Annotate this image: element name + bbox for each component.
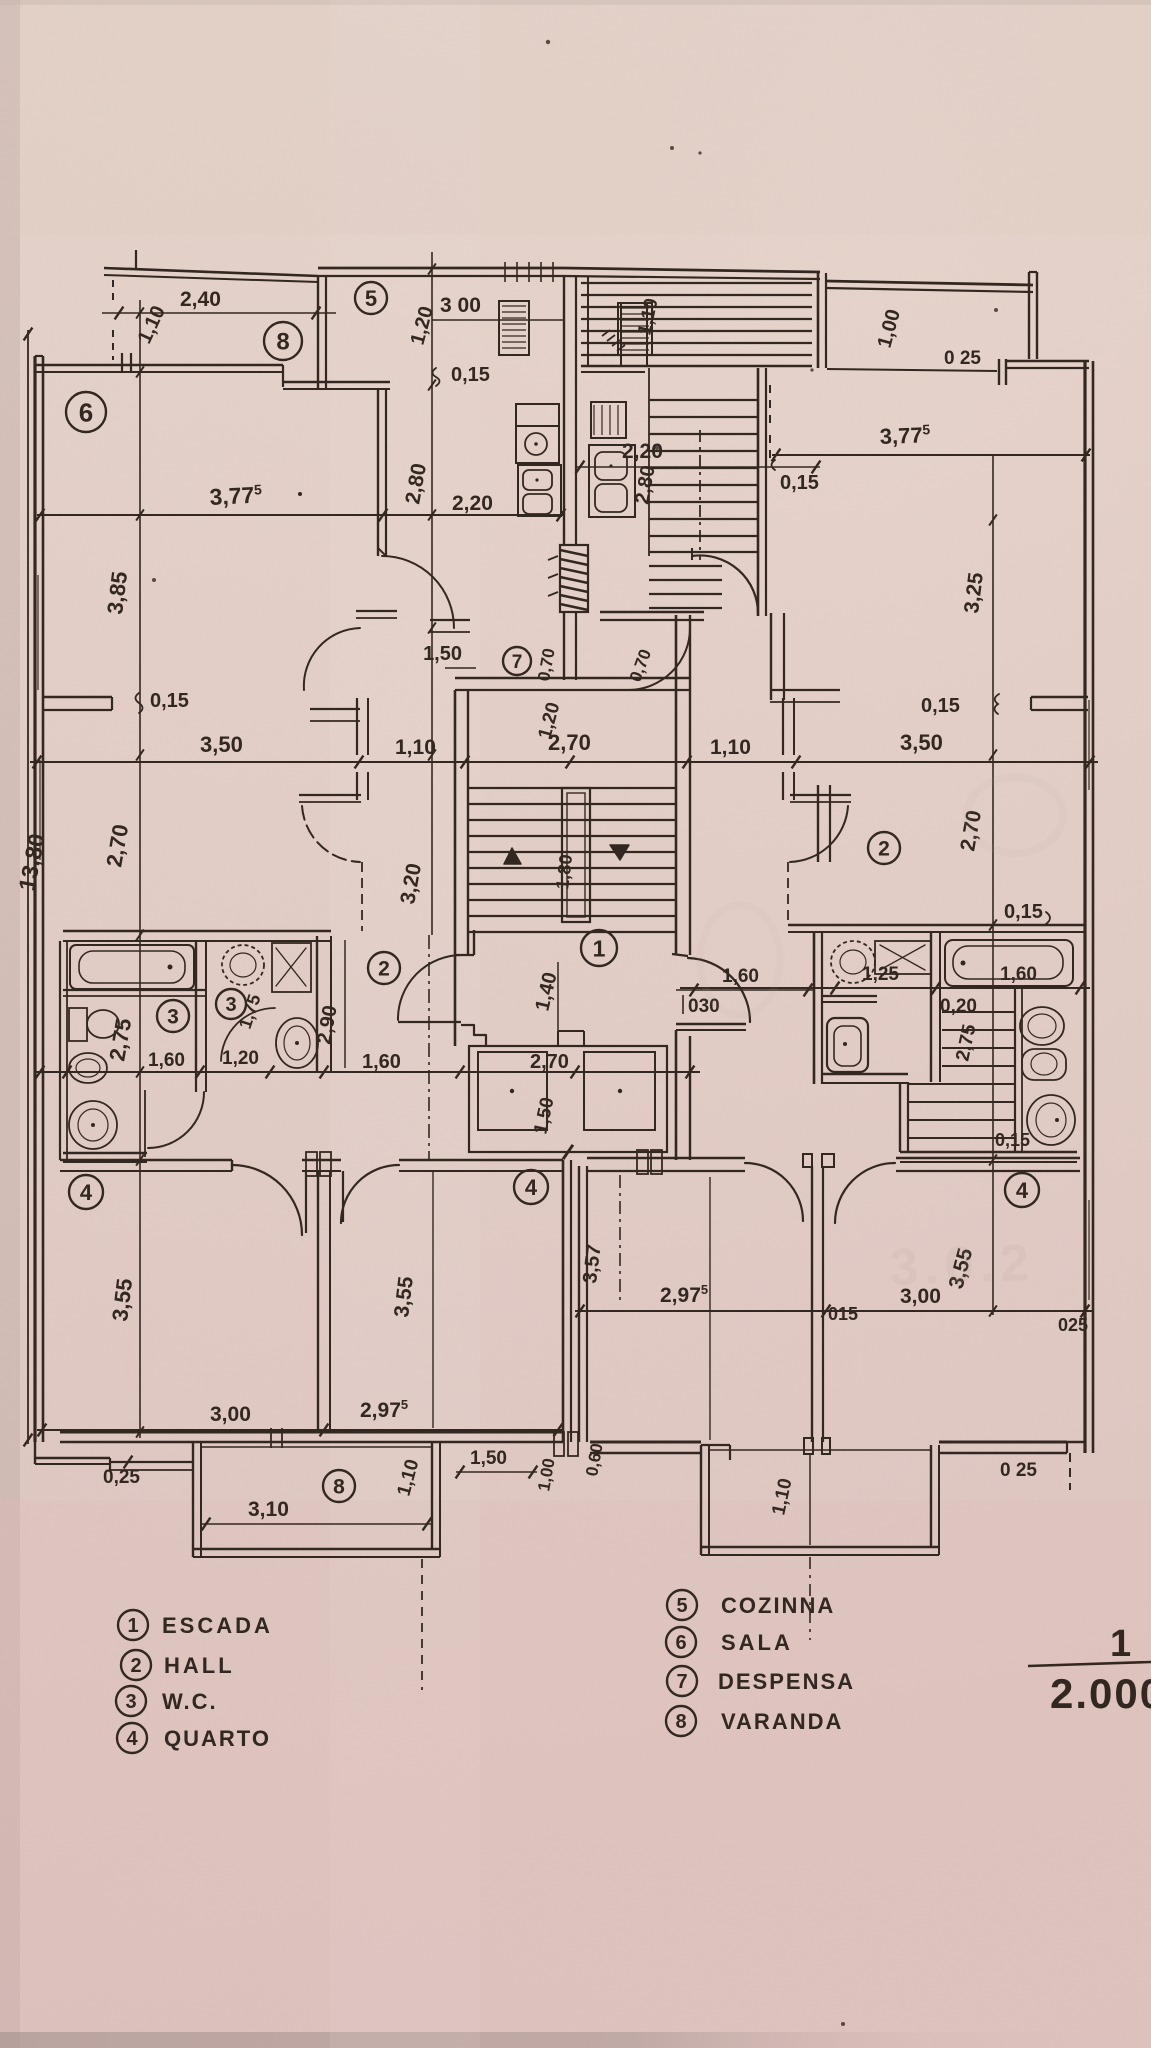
svg-text:3: 3 [167, 1006, 179, 1029]
svg-text:1,60: 1,60 [362, 1051, 401, 1073]
svg-text:2.000: 2.000 [1050, 1670, 1151, 1717]
svg-text:3,57: 3,57 [579, 1243, 606, 1284]
svg-text:3 00: 3 00 [440, 294, 481, 317]
svg-text:2,70: 2,70 [530, 1051, 569, 1073]
svg-text:015: 015 [828, 1304, 858, 1324]
svg-text:4: 4 [80, 1180, 93, 1205]
svg-text:0,15: 0,15 [921, 695, 960, 717]
svg-text:7: 7 [676, 1671, 687, 1693]
svg-text:1: 1 [127, 1615, 138, 1637]
svg-text:5: 5 [365, 286, 377, 311]
svg-text:3: 3 [125, 1691, 136, 1713]
svg-text:ESCADA: ESCADA [162, 1613, 273, 1638]
svg-text:2: 2 [878, 838, 890, 861]
svg-text:0,15: 0,15 [150, 690, 189, 712]
svg-text:2: 2 [378, 958, 390, 981]
svg-text:3,775: 3,775 [209, 481, 263, 510]
svg-text:025: 025 [1058, 1315, 1088, 1335]
svg-text:1,25: 1,25 [862, 964, 899, 985]
svg-text:1: 1 [1110, 1623, 1131, 1665]
svg-text:1,10: 1,10 [710, 736, 751, 759]
svg-text:0,15: 0,15 [780, 472, 819, 494]
svg-text:3,50: 3,50 [200, 732, 243, 757]
svg-text:3,10: 3,10 [248, 1498, 289, 1521]
svg-text:1,50: 1,50 [470, 1448, 507, 1469]
svg-text:0 25: 0 25 [1000, 1460, 1037, 1481]
svg-text:0,15: 0,15 [451, 364, 490, 386]
svg-text:DESPENSA: DESPENSA [718, 1669, 855, 1694]
svg-text:8: 8 [276, 329, 289, 356]
svg-text:3,50: 3,50 [900, 730, 943, 755]
svg-text:VARANDA: VARANDA [721, 1709, 843, 1734]
svg-text:0,15: 0,15 [995, 1130, 1030, 1150]
svg-text:1,60: 1,60 [722, 966, 759, 987]
svg-text:3: 3 [225, 994, 236, 1016]
svg-text:6: 6 [675, 1632, 686, 1654]
svg-text:0,20: 0,20 [940, 996, 977, 1017]
svg-text:1,50: 1,50 [423, 643, 462, 665]
svg-text:QUARTO: QUARTO [164, 1726, 271, 1751]
svg-text:2,20: 2,20 [452, 492, 493, 515]
svg-text:6: 6 [79, 397, 93, 427]
svg-text:2,20: 2,20 [622, 440, 663, 463]
svg-text:1,20: 1,20 [222, 1048, 259, 1069]
svg-text:0 25: 0 25 [944, 348, 981, 369]
svg-text:0,15: 0,15 [1004, 901, 1043, 923]
svg-text:1,80: 1,80 [552, 853, 576, 890]
svg-text:HALL: HALL [164, 1653, 235, 1678]
svg-text:1,60: 1,60 [148, 1050, 185, 1071]
svg-text:3.0.2: 3.0.2 [888, 1234, 1036, 1297]
svg-text:4: 4 [126, 1728, 138, 1750]
svg-text:2: 2 [130, 1655, 141, 1677]
svg-text:3,00: 3,00 [210, 1403, 251, 1426]
svg-text:2,40: 2,40 [180, 288, 221, 311]
svg-text:COZINNA: COZINNA [721, 1593, 835, 1618]
svg-text:1,10: 1,10 [395, 736, 436, 759]
svg-text:3,55: 3,55 [107, 1277, 137, 1323]
svg-text:1,60: 1,60 [1000, 964, 1037, 985]
svg-text:5: 5 [676, 1595, 687, 1617]
svg-text:4: 4 [525, 1175, 538, 1200]
svg-text:W.C.: W.C. [162, 1689, 218, 1714]
svg-text:8: 8 [333, 1476, 345, 1499]
svg-text:SALA: SALA [721, 1630, 793, 1655]
svg-text:1: 1 [593, 935, 606, 961]
svg-text:3,85: 3,85 [102, 570, 132, 616]
svg-text:8: 8 [675, 1711, 686, 1733]
svg-text:4: 4 [1016, 1178, 1029, 1203]
svg-text:7: 7 [512, 652, 523, 673]
